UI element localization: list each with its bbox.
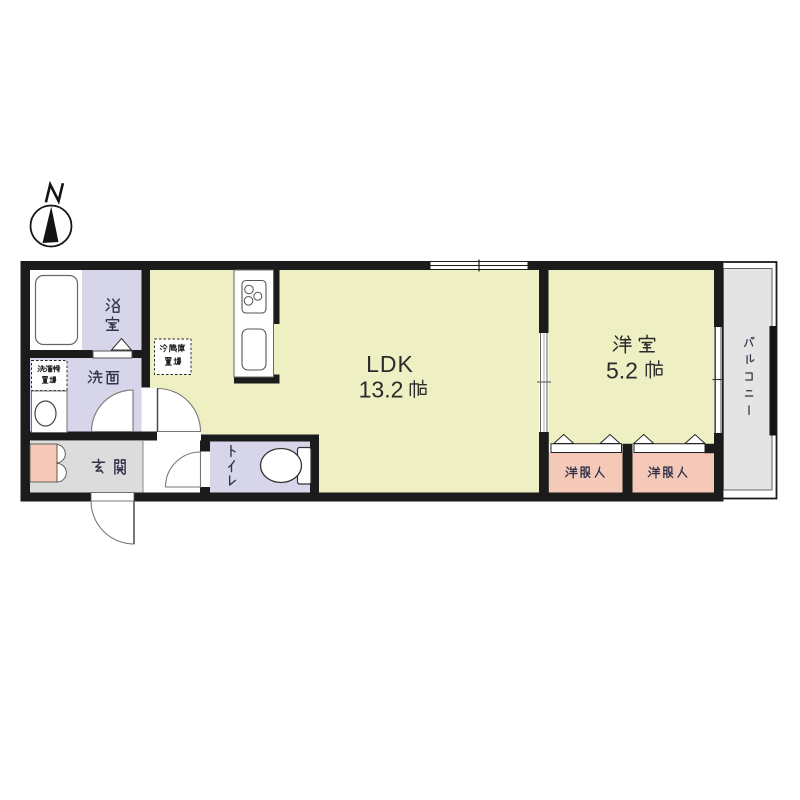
svg-text:LDK: LDK — [366, 351, 414, 377]
svg-text:13.2: 13.2 — [359, 377, 404, 403]
svg-text:5.2: 5.2 — [606, 358, 638, 384]
